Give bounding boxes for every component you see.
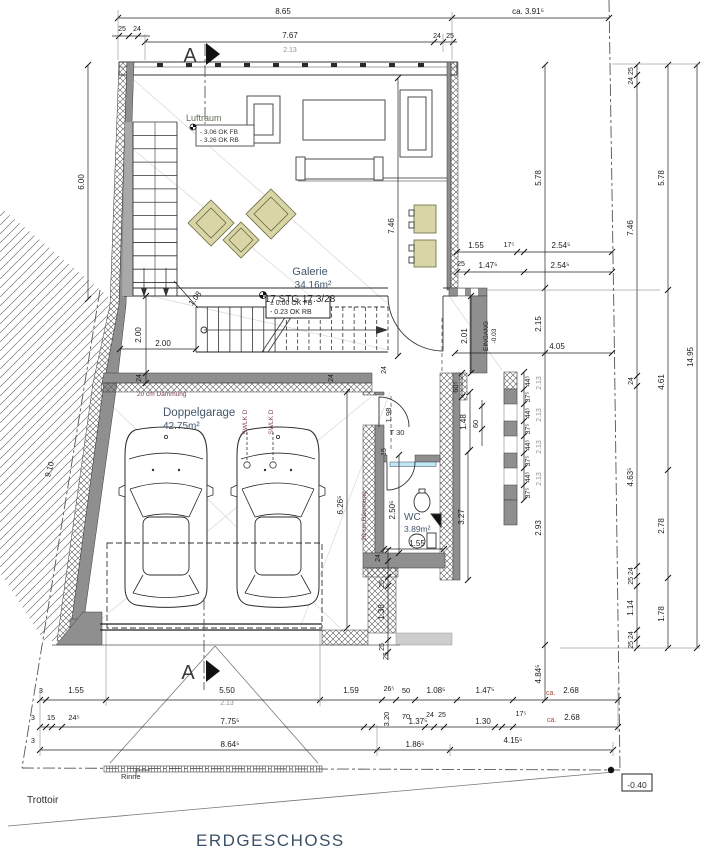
dim-label: 60⁵ bbox=[451, 381, 460, 392]
porch-opening bbox=[458, 289, 465, 296]
mullion bbox=[215, 63, 221, 67]
sideboard bbox=[409, 205, 436, 267]
drawing-title: ERDGESCHOSS bbox=[196, 831, 345, 849]
insulation-note: 20 cm Dämmung bbox=[361, 491, 368, 541]
dim-label: 1.86⁵ bbox=[406, 740, 425, 749]
dim-label: 15 bbox=[47, 713, 55, 722]
dim-label: 7.46 bbox=[387, 218, 396, 234]
dim-label: 25 bbox=[379, 643, 386, 651]
car bbox=[231, 427, 325, 607]
dim-label: 25 bbox=[457, 261, 465, 268]
drain-note: SWLK D bbox=[242, 409, 249, 434]
dim-label: 24 25 bbox=[628, 67, 635, 85]
dim-label: 2.13 bbox=[283, 47, 297, 54]
dim-label: 7.67 bbox=[282, 31, 298, 40]
dim-label: 2.00 bbox=[134, 327, 143, 343]
dim-label: 1.08⁵ bbox=[427, 686, 446, 695]
drain-note: SWLK D bbox=[268, 409, 275, 434]
dim-label: 2.01 bbox=[460, 328, 469, 344]
mullion bbox=[389, 63, 395, 67]
dim-label: 1.08 bbox=[187, 289, 204, 307]
dim-label: 1.48 bbox=[459, 414, 468, 430]
wc-west-wall bbox=[375, 425, 384, 553]
porch-top-wall bbox=[449, 288, 487, 296]
section-letter-top: A bbox=[183, 45, 197, 67]
dim-label: 1.38 bbox=[377, 604, 386, 620]
level-text: - 3.26 OK RB bbox=[200, 137, 239, 144]
room-label-luftraum: Luftraum bbox=[186, 113, 222, 123]
dim-label: 24 bbox=[628, 377, 635, 385]
mullion bbox=[157, 63, 163, 67]
entrance-level: -0.03 bbox=[491, 328, 498, 343]
dim-label: 44⁵ bbox=[525, 408, 532, 419]
sofa-armrest bbox=[374, 157, 383, 180]
sidewalk-label: Trottoir bbox=[27, 795, 59, 806]
dim-label: 5.50 bbox=[219, 686, 235, 695]
stair-label: 17 STG 17.3/28 bbox=[265, 294, 336, 305]
walkline-arrow bbox=[376, 326, 388, 334]
dim-label: 2.13 bbox=[536, 440, 543, 454]
dim-label: 25 bbox=[379, 580, 386, 588]
dim-label: 1.98 bbox=[384, 408, 393, 423]
dim-label: 2.13 bbox=[220, 700, 234, 707]
armchair-cushion bbox=[254, 104, 273, 135]
north-glazing bbox=[119, 62, 457, 75]
dim-label: 25 bbox=[383, 652, 390, 660]
dim-label: 17⁵ bbox=[504, 242, 515, 249]
room-area-galerie: 34.16m² bbox=[295, 280, 332, 291]
entrance-label: EINGANG bbox=[483, 321, 490, 351]
terrace-slab bbox=[396, 633, 452, 645]
washbasin-tap bbox=[419, 489, 425, 493]
dim-label: 17⁵ bbox=[516, 711, 527, 718]
dim-label: 50 bbox=[402, 686, 410, 695]
fence-pillar bbox=[504, 485, 517, 500]
wc-north-wall bbox=[415, 455, 440, 462]
dim-label: 1.55 bbox=[468, 241, 484, 250]
dim-label: 25 24 bbox=[628, 631, 635, 649]
dim-label: 1.37⁵ bbox=[409, 717, 428, 726]
fence-pillar bbox=[504, 421, 517, 436]
dim-label: 44⁵ bbox=[525, 376, 532, 387]
dim-label: 25 24 bbox=[628, 567, 635, 585]
dim-label: 1.47⁵ bbox=[476, 686, 495, 695]
dim-label: 37⁵ bbox=[525, 456, 532, 467]
insulation-note: 20 cm Dämmung bbox=[137, 391, 187, 398]
wc-window-band bbox=[390, 462, 436, 467]
dim-label: 4.63⁵ bbox=[626, 468, 635, 487]
east-fence bbox=[504, 372, 517, 525]
dim-label: 2.15 bbox=[534, 316, 543, 332]
dim-label: 4.84⁵ bbox=[534, 665, 543, 684]
duct bbox=[431, 514, 441, 527]
dim-label: 5.78 bbox=[534, 170, 543, 186]
dim-label: 60 bbox=[471, 420, 480, 428]
gutter-label: Rinne bbox=[121, 772, 141, 781]
dim-label: 8.65 bbox=[275, 7, 291, 16]
dim-label: 2.13 bbox=[536, 408, 543, 422]
page: ERDGESCHOSSAATrottoirRinne-0.40Galerie34… bbox=[0, 0, 704, 849]
driveway bbox=[110, 646, 318, 763]
dim-label: 44⁵ bbox=[525, 472, 532, 483]
dim-label: 26⁵ bbox=[384, 686, 395, 693]
room-area-garage: 42.75m² bbox=[163, 421, 200, 432]
washbasin bbox=[414, 492, 430, 512]
dim-label: ca. bbox=[546, 690, 555, 697]
sidewalk-edge bbox=[8, 772, 614, 826]
fence-pillar bbox=[504, 389, 517, 404]
dim-label: 5.78 bbox=[657, 170, 666, 186]
room-label-galerie: Galerie bbox=[292, 266, 327, 278]
dim-label: 1.78 bbox=[657, 606, 666, 622]
dim-label: 1.30 bbox=[475, 717, 491, 726]
dim-label: 24⁵ bbox=[68, 713, 79, 722]
dim-label: 2.68 bbox=[564, 713, 580, 722]
dim-label: 24 bbox=[133, 26, 141, 33]
east-wall-upper-insulation bbox=[451, 62, 458, 290]
furniture bbox=[188, 90, 447, 267]
floor-cushions bbox=[188, 189, 296, 258]
mullion bbox=[360, 63, 366, 67]
mullion bbox=[273, 63, 279, 67]
mullion bbox=[331, 63, 337, 67]
dim-label: 4.61 bbox=[657, 374, 666, 390]
garage-door bbox=[100, 624, 322, 630]
east-wall-lower bbox=[453, 373, 460, 580]
dim-label: 37⁵ bbox=[525, 392, 532, 403]
dim-label: 24 bbox=[426, 712, 434, 719]
dim-label: 1.55 bbox=[409, 539, 425, 548]
mullion bbox=[244, 63, 250, 67]
dim-label: 2.50⁵ bbox=[388, 501, 397, 520]
dim-label: ca. bbox=[547, 717, 556, 724]
garage-door-jamb-right bbox=[322, 630, 368, 645]
dim-label: 1.59 bbox=[343, 686, 359, 695]
dim-label: 2.13 bbox=[536, 472, 543, 486]
sofa bbox=[299, 159, 380, 179]
dim-label: 14.95 bbox=[686, 346, 695, 367]
dim-label: 1.55 bbox=[68, 686, 84, 695]
level-badge-value: -0.40 bbox=[627, 780, 647, 790]
dim-label: 24 bbox=[328, 374, 335, 382]
dim-label: 24 bbox=[136, 374, 143, 382]
dim-label: 3 bbox=[31, 738, 35, 745]
toilet-tank bbox=[427, 533, 436, 548]
fence-end-post bbox=[504, 500, 517, 525]
dim-label: 24 bbox=[375, 554, 382, 562]
dim-label: 2.54⁵ bbox=[551, 261, 570, 270]
dim-label: 7.75⁵ bbox=[221, 717, 240, 726]
wc-west-wall bbox=[363, 392, 375, 395]
level-text: - 0.23 OK RB bbox=[270, 309, 312, 316]
mullion bbox=[418, 63, 424, 67]
garage-se-corner-wall bbox=[368, 568, 396, 633]
dim-label: 3.27 bbox=[457, 509, 466, 525]
dim-label: 6.26⁵ bbox=[336, 496, 345, 515]
floor-plan-canvas: ERDGESCHOSSAATrottoirRinne-0.40Galerie34… bbox=[0, 0, 704, 849]
dim-label: ca. 3.91⁵ bbox=[512, 7, 544, 16]
armchair-cushion bbox=[408, 97, 426, 150]
boundary-level-marker bbox=[608, 767, 614, 773]
dim-label: 25 bbox=[438, 712, 446, 719]
stair-upper-left bbox=[122, 122, 177, 297]
dim-label: 24 bbox=[433, 33, 441, 40]
dim-label: 4.05 bbox=[549, 342, 565, 351]
sofa-table bbox=[303, 100, 385, 140]
dim-label: 44⁵ bbox=[525, 440, 532, 451]
dim-label: 15 bbox=[381, 448, 388, 456]
mullion bbox=[302, 63, 308, 67]
fence-pillar bbox=[504, 453, 517, 468]
dim-label: 2.13 bbox=[473, 329, 480, 343]
dim-label: 2.93 bbox=[534, 520, 543, 536]
dim-label: 4.15⁵ bbox=[504, 736, 523, 745]
dim-label: 1.14 bbox=[626, 600, 635, 616]
wc-west-wall bbox=[375, 392, 384, 395]
entrance-door-swing bbox=[388, 296, 443, 351]
dim-label: 37⁵ bbox=[525, 424, 532, 435]
dim-label: 2.68 bbox=[563, 686, 579, 695]
room-area-wc: 3.89m² bbox=[404, 524, 431, 534]
room-label-wc: WC bbox=[404, 512, 421, 523]
dim-label: 2.78 bbox=[657, 518, 666, 534]
dim-label: 3.20 bbox=[382, 712, 391, 727]
sofa-armrest bbox=[296, 157, 305, 180]
section-letter-bottom: A bbox=[181, 662, 195, 684]
level-text: - 3.06 OK FB bbox=[200, 129, 238, 136]
dim-label: 8.64⁵ bbox=[221, 740, 240, 749]
dim-label: 25 bbox=[118, 26, 126, 33]
dim-label: 2.13 bbox=[536, 376, 543, 390]
dim-label: 25 bbox=[446, 33, 454, 40]
dim-label: 37⁵ bbox=[525, 488, 532, 499]
dim-label: 3 bbox=[39, 688, 43, 695]
section-arrow-bottom bbox=[206, 660, 220, 682]
dim-label: 3 bbox=[31, 715, 35, 722]
dim-label: 2.54⁵ bbox=[552, 241, 571, 250]
dim-label: 2.00 bbox=[155, 339, 171, 348]
dim-label: 7.46 bbox=[626, 220, 635, 236]
room-label-garage: Doppelgarage bbox=[163, 407, 235, 419]
door-label: T 30 bbox=[390, 428, 405, 437]
dim-label: 24 bbox=[381, 366, 388, 374]
east-wall-upper bbox=[447, 62, 451, 290]
fence-corner-post bbox=[504, 372, 517, 389]
car bbox=[119, 427, 213, 607]
dim-label: 1.47⁵ bbox=[479, 261, 498, 270]
dim-label: 6.00 bbox=[77, 174, 86, 190]
